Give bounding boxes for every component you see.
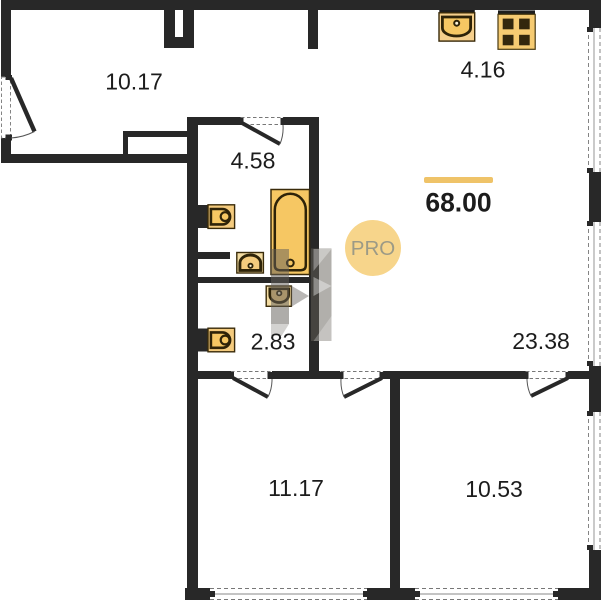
svg-text:68.00: 68.00 bbox=[425, 188, 491, 218]
svg-text:10.53: 10.53 bbox=[465, 476, 523, 502]
svg-text:4.16: 4.16 bbox=[461, 57, 506, 83]
svg-text:2.83: 2.83 bbox=[251, 329, 296, 355]
svg-text:4.58: 4.58 bbox=[231, 148, 276, 174]
svg-text:10.17: 10.17 bbox=[105, 69, 163, 95]
svg-text:PRO: PRO bbox=[351, 237, 395, 260]
svg-text:11.17: 11.17 bbox=[268, 475, 324, 501]
svg-text:23.38: 23.38 bbox=[512, 328, 570, 354]
